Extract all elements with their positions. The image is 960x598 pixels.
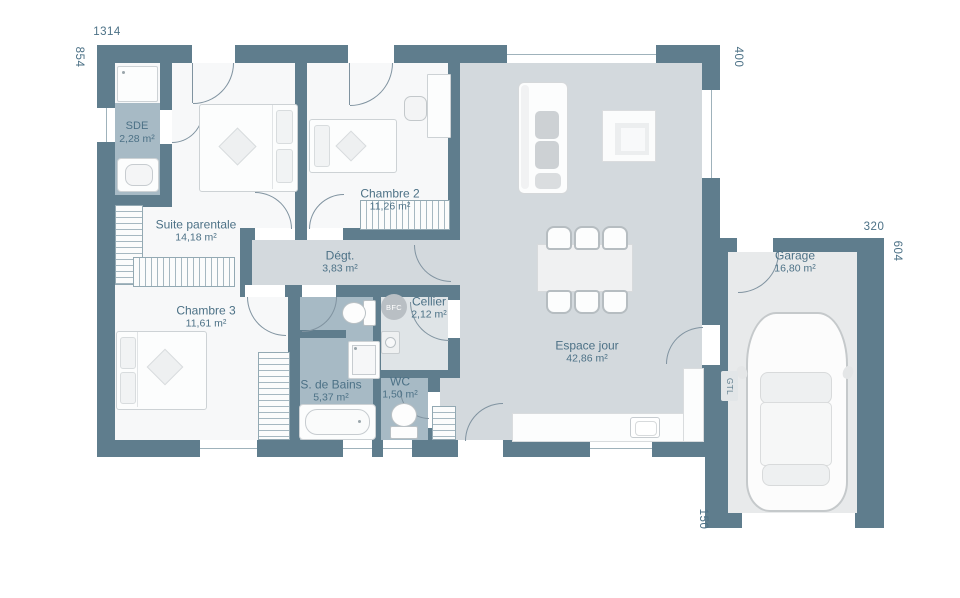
- toilet-tank: [390, 426, 418, 439]
- room-label-cellier: Cellier2,12 m²: [411, 295, 447, 322]
- washbasin-icon: [117, 158, 159, 192]
- entrance-door-opening: [458, 440, 503, 457]
- closet-icon: [432, 406, 456, 440]
- room-label-chambre3: Chambre 311,61 m²: [176, 304, 235, 331]
- chair-icon: [546, 290, 572, 314]
- dimension-house-right: 400: [732, 47, 744, 68]
- dimension-top: 1314: [93, 26, 121, 38]
- room-label-sde: SDE2,28 m²: [119, 120, 155, 146]
- kitchen-counter: [683, 368, 704, 442]
- window: [343, 440, 372, 457]
- door-opening: [702, 325, 720, 365]
- door-opening: [307, 228, 343, 240]
- room-label-degagement: Dégt.3,83 m²: [322, 249, 358, 276]
- dimension-garage-top: 320: [864, 221, 885, 233]
- garage-door-opening: [742, 513, 855, 528]
- window: [97, 108, 115, 142]
- room-label-salle-de-bains: S. de Bains5,37 m²: [300, 378, 361, 405]
- room-label-suite-parentale: Suite parentale14,18 m²: [156, 218, 237, 245]
- wardrobe-icon: [258, 352, 290, 440]
- shower-icon: [348, 341, 380, 379]
- room-label-wc: WC1,50 m²: [382, 375, 418, 402]
- window: [200, 440, 257, 457]
- door-opening: [302, 285, 336, 297]
- sink-icon: [630, 417, 660, 438]
- water-heater-label: BFC: [386, 303, 402, 312]
- door-opening: [255, 228, 295, 240]
- dining-table-icon: [537, 244, 633, 292]
- door-opening: [737, 238, 773, 252]
- dimension-garage-bottom-left: 150: [697, 509, 709, 530]
- armchair-icon: [602, 110, 656, 162]
- window: [383, 440, 412, 457]
- toilet-icon: [342, 302, 366, 324]
- window: [702, 90, 720, 178]
- gtl-duct-tag: GTL: [721, 371, 738, 401]
- desk-icon: [427, 74, 451, 138]
- room-label-garage: Garage16,80 m²: [774, 249, 815, 276]
- bathtub-icon: [299, 404, 376, 440]
- washing-machine-icon: [381, 331, 400, 354]
- car-icon: [746, 312, 848, 512]
- window: [507, 45, 656, 63]
- window: [348, 45, 394, 63]
- sofa-icon: [518, 82, 568, 194]
- gtl-label: GTL: [725, 377, 734, 394]
- chair-icon: [546, 226, 572, 250]
- chair-icon: [574, 226, 600, 250]
- drain-dot: [122, 71, 125, 74]
- window: [192, 45, 235, 63]
- kitchen-counter: [512, 413, 704, 442]
- door-opening: [448, 300, 460, 338]
- door-opening: [245, 285, 285, 297]
- toilet-icon: [391, 403, 417, 427]
- door-opening: [160, 110, 172, 144]
- chair-icon: [602, 226, 628, 250]
- chair-icon: [574, 290, 600, 314]
- double-bed-icon: [116, 331, 207, 410]
- dimension-left: 854: [73, 47, 85, 68]
- desk-chair-icon: [404, 96, 427, 121]
- single-bed-icon: [309, 119, 397, 173]
- double-bed-icon: [199, 104, 298, 192]
- wardrobe-icon: [133, 257, 235, 287]
- floor-plan: BFC GTL SDE2,28 m² Suite parentale14,18 …: [0, 0, 960, 598]
- room-label-espace-jour: Espace jour42,86 m²: [555, 339, 618, 366]
- water-heater-icon: BFC: [381, 294, 407, 320]
- room-label-chambre2: Chambre 211,26 m²: [360, 187, 419, 214]
- dimension-garage-right: 604: [891, 241, 903, 262]
- chair-icon: [602, 290, 628, 314]
- window: [590, 440, 652, 457]
